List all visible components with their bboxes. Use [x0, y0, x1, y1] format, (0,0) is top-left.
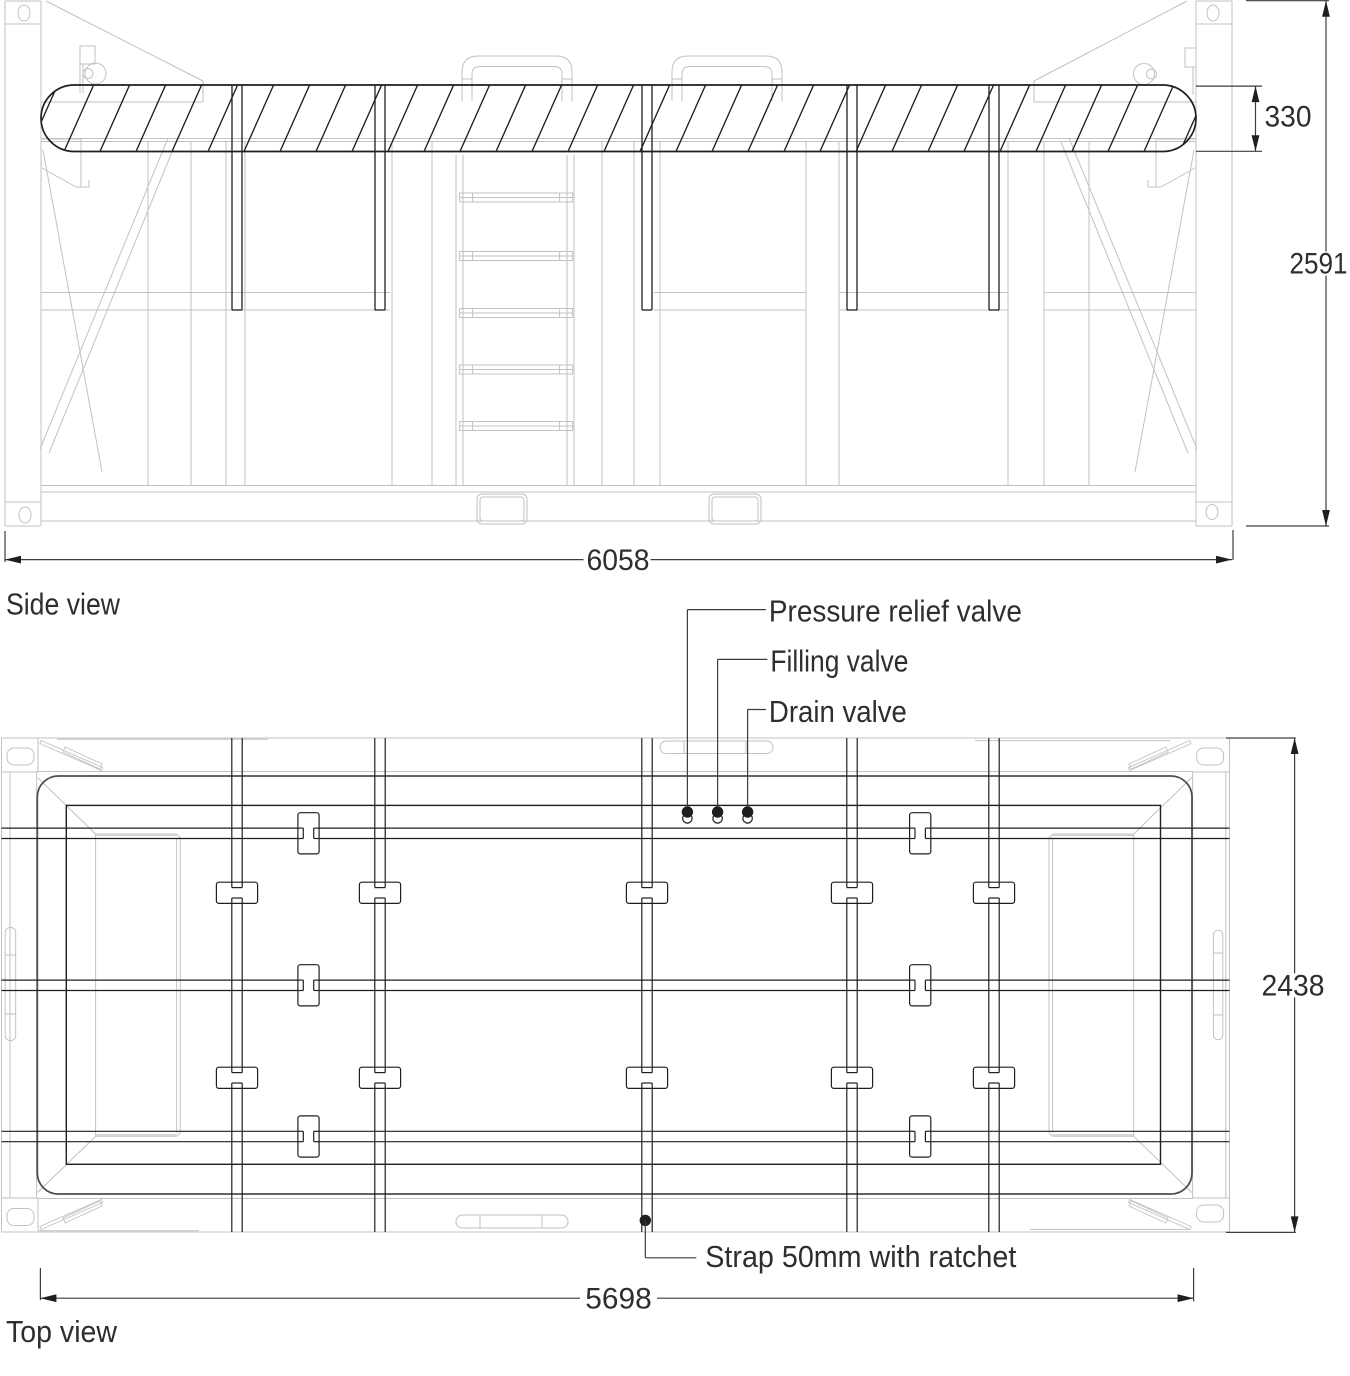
svg-text:Drain valve: Drain valve	[769, 694, 907, 729]
svg-text:2591: 2591	[1290, 248, 1348, 281]
svg-text:2438: 2438	[1262, 969, 1325, 1002]
svg-text:Strap 50mm with ratchet: Strap 50mm with ratchet	[705, 1239, 1016, 1274]
svg-text:330: 330	[1265, 101, 1312, 134]
svg-text:Side view: Side view	[6, 586, 121, 621]
svg-text:6058: 6058	[587, 544, 650, 577]
svg-text:Pressure relief valve: Pressure relief valve	[769, 594, 1022, 629]
svg-text:Top view: Top view	[6, 1314, 118, 1349]
svg-text:5698: 5698	[585, 1283, 652, 1316]
svg-text:Filling valve: Filling valve	[770, 644, 908, 679]
